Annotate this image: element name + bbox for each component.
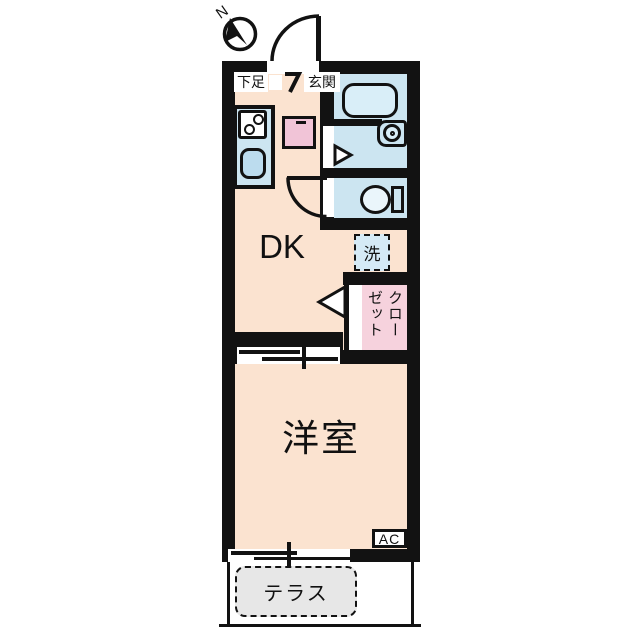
entrance-door-swing [272,16,319,61]
toilet-door-swing [288,178,327,217]
entrance-step-mark [285,74,299,92]
closet-door-marker [319,287,345,317]
bathroom-door-marker [335,146,351,164]
floorplan: 洗 クローゼット 下足 玄関 AC テラス DK 洋室 N [0,0,640,640]
plan-vector-overlay [0,0,640,640]
